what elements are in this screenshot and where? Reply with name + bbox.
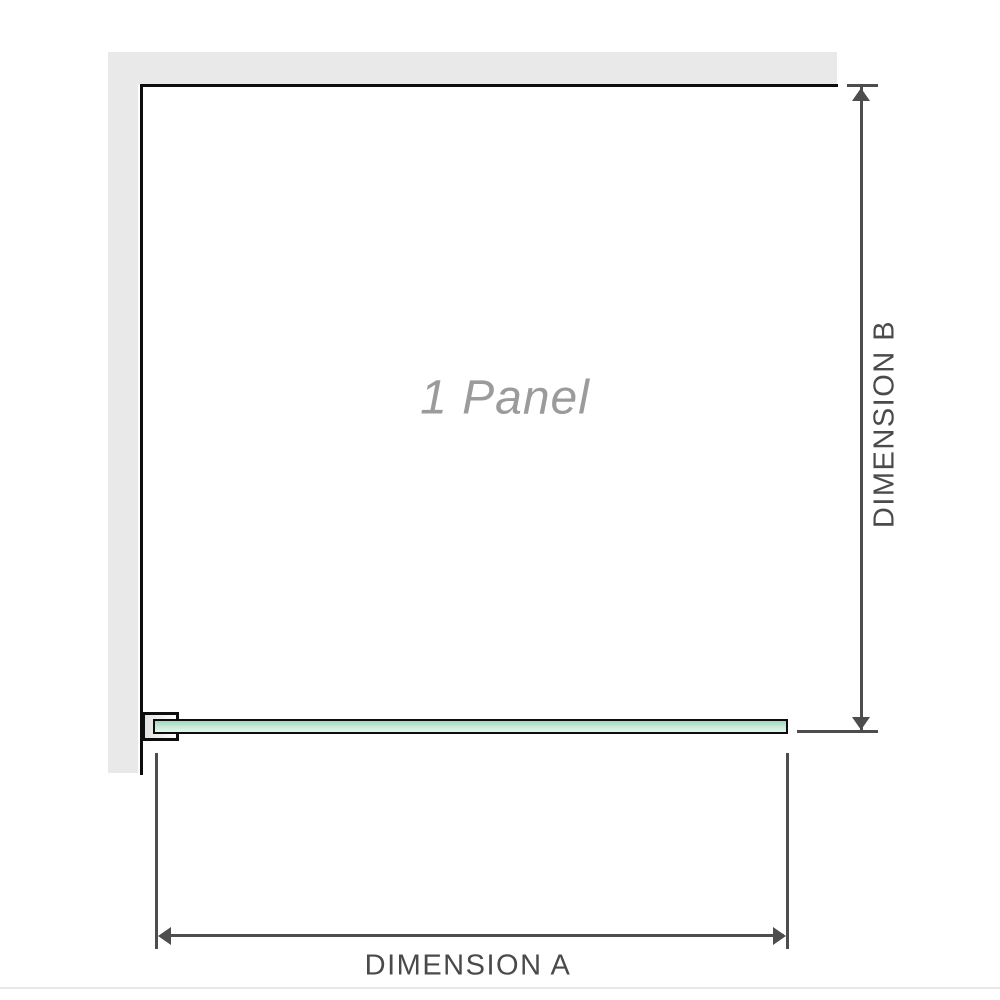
arrow-down-icon [852, 717, 870, 730]
baseline-rule [0, 987, 1000, 989]
shower-screen-dimension-diagram: 1 Panel DIMENSION B DIMENSION A [0, 0, 1000, 1000]
dimension-b-line [860, 87, 863, 730]
panel-count-label: 1 Panel [420, 371, 590, 426]
arrow-left-icon [158, 927, 171, 945]
dimension-b-bottom-tick [797, 730, 878, 733]
dimension-b-label: DIMENSION B [869, 320, 902, 528]
dimension-a-label: DIMENSION A [365, 950, 572, 983]
panel-outline [140, 84, 838, 775]
wall-left-band [108, 52, 138, 773]
glass-panel-bar [153, 719, 788, 734]
dimension-a-left-extension [155, 753, 158, 949]
arrow-right-icon [773, 927, 786, 945]
dimension-a-line [162, 934, 784, 937]
wall-top-band [108, 52, 837, 84]
arrow-up-icon [852, 88, 870, 101]
dimension-a-right-extension [786, 753, 789, 949]
